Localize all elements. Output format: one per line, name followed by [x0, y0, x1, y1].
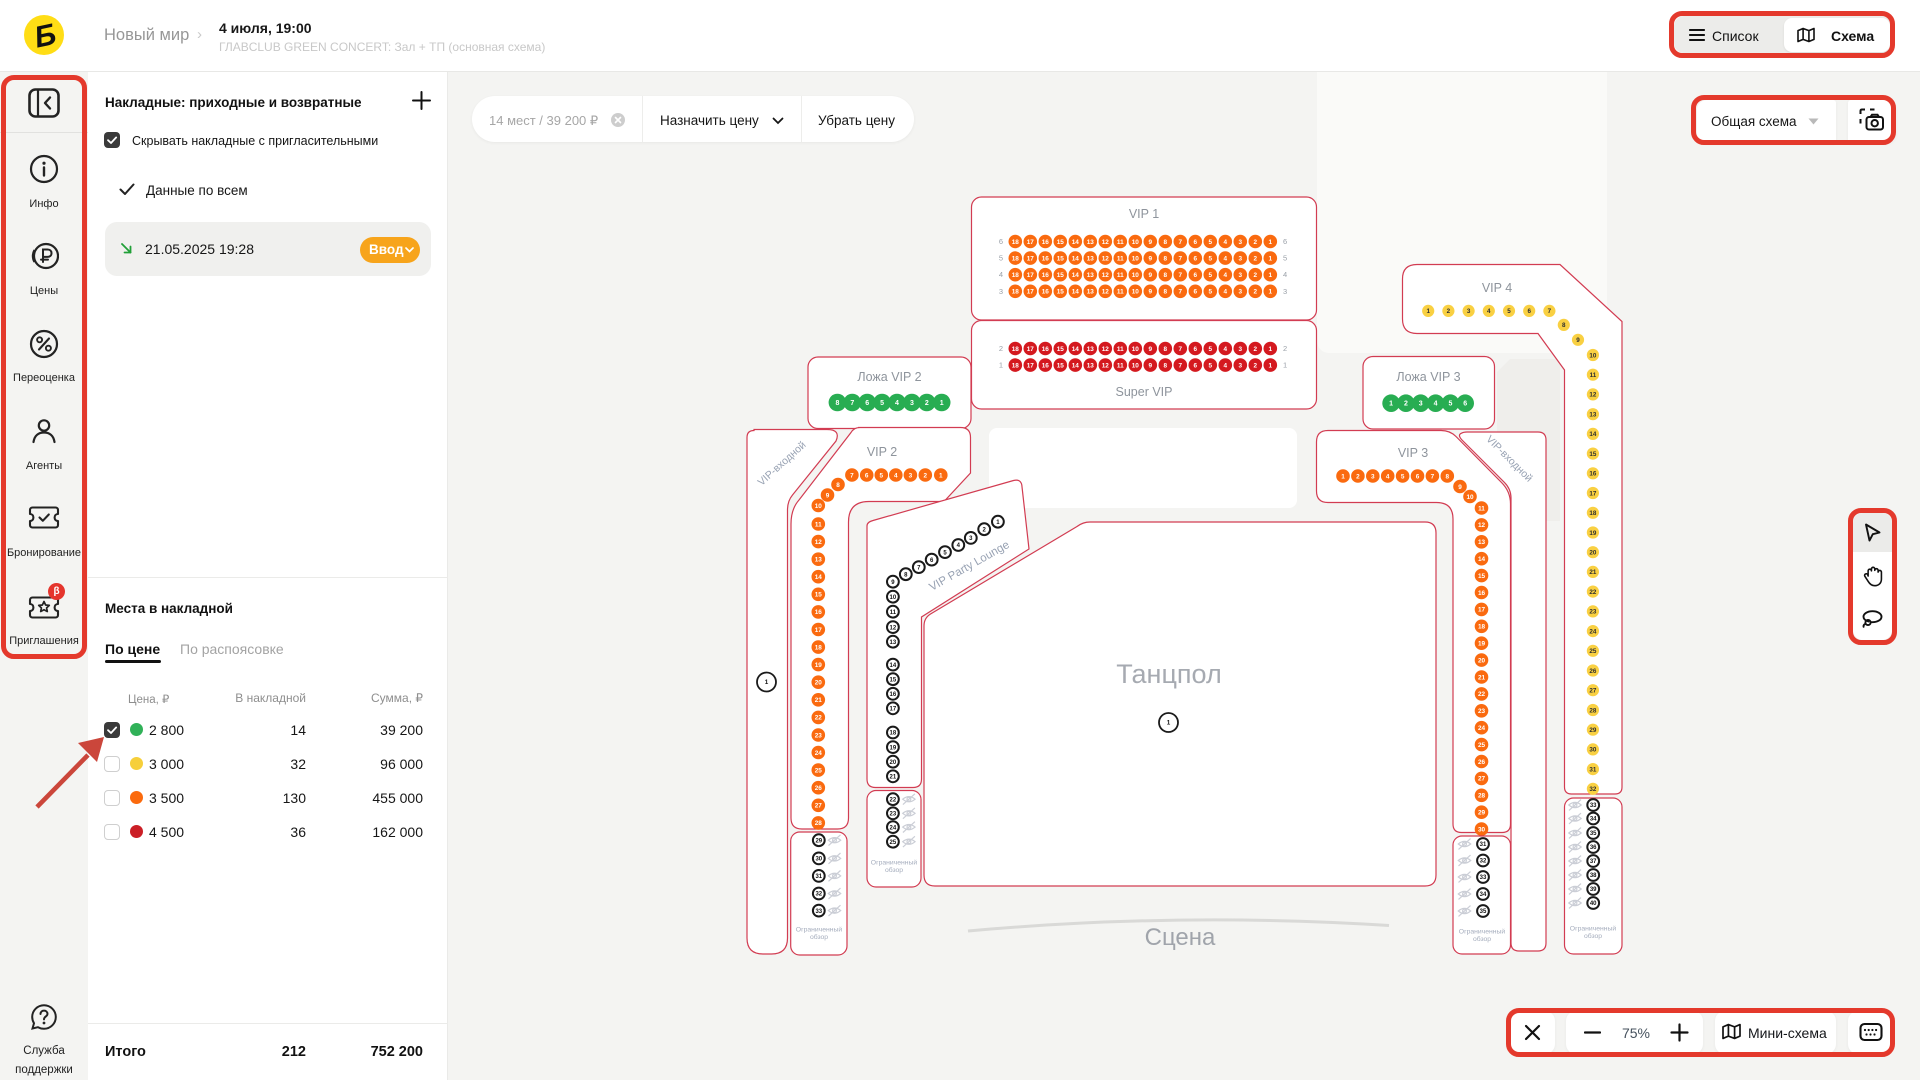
svg-text:4: 4 — [1386, 473, 1390, 480]
svg-text:2: 2 — [1254, 239, 1258, 246]
svg-text:9: 9 — [826, 492, 830, 499]
svg-text:4: 4 — [895, 400, 899, 407]
svg-text:15: 15 — [1057, 362, 1065, 369]
svg-text:10: 10 — [1132, 255, 1140, 262]
svg-text:20: 20 — [1478, 657, 1486, 664]
svg-text:1: 1 — [1269, 239, 1273, 246]
svg-text:1: 1 — [1426, 308, 1430, 315]
svg-text:8: 8 — [1446, 473, 1450, 480]
svg-text:10: 10 — [1132, 272, 1140, 279]
svg-text:11: 11 — [1117, 239, 1124, 246]
svg-text:5: 5 — [1401, 473, 1405, 480]
svg-text:33: 33 — [1480, 875, 1487, 881]
svg-text:10: 10 — [1132, 239, 1140, 246]
svg-text:1: 1 — [1269, 346, 1273, 353]
svg-text:10: 10 — [890, 595, 897, 601]
svg-text:18: 18 — [1012, 346, 1020, 353]
svg-text:29: 29 — [1589, 727, 1597, 734]
svg-text:3: 3 — [1283, 287, 1287, 296]
svg-text:17: 17 — [1027, 346, 1035, 353]
svg-text:обзор: обзор — [810, 933, 828, 941]
svg-text:24: 24 — [890, 825, 897, 831]
svg-text:13: 13 — [1087, 346, 1095, 353]
svg-text:25: 25 — [1478, 742, 1486, 749]
svg-text:8: 8 — [1164, 255, 1168, 262]
svg-text:31: 31 — [1589, 766, 1597, 773]
svg-text:4: 4 — [894, 472, 898, 479]
svg-text:35: 35 — [1590, 831, 1597, 837]
svg-text:5: 5 — [1283, 254, 1287, 263]
svg-text:29: 29 — [815, 838, 822, 844]
svg-text:22: 22 — [1589, 589, 1597, 596]
svg-text:7: 7 — [1431, 473, 1435, 480]
svg-text:9: 9 — [1149, 289, 1153, 296]
svg-text:39: 39 — [1590, 887, 1597, 893]
svg-text:32: 32 — [1589, 786, 1597, 793]
svg-text:30: 30 — [1589, 747, 1597, 754]
svg-text:17: 17 — [1027, 362, 1035, 369]
svg-text:10: 10 — [815, 503, 823, 510]
svg-text:3: 3 — [1371, 473, 1375, 480]
svg-text:Ограниченный: Ограниченный — [796, 926, 843, 934]
svg-text:3: 3 — [1239, 289, 1243, 296]
svg-text:8: 8 — [1164, 346, 1168, 353]
svg-text:16: 16 — [1042, 346, 1050, 353]
svg-text:40: 40 — [1590, 901, 1597, 907]
svg-text:34: 34 — [1590, 817, 1597, 823]
svg-text:4: 4 — [1224, 272, 1228, 279]
svg-text:23: 23 — [890, 812, 897, 818]
svg-text:22: 22 — [1478, 691, 1486, 698]
svg-text:1: 1 — [939, 472, 943, 479]
svg-text:15: 15 — [1057, 346, 1065, 353]
svg-text:24: 24 — [1478, 725, 1486, 732]
svg-text:5: 5 — [1209, 239, 1213, 246]
svg-text:2: 2 — [1283, 344, 1287, 353]
svg-text:17: 17 — [1027, 289, 1035, 296]
svg-text:15: 15 — [1057, 289, 1065, 296]
svg-text:21: 21 — [890, 775, 897, 781]
svg-text:7: 7 — [1179, 289, 1183, 296]
svg-text:8: 8 — [836, 482, 840, 489]
svg-text:26: 26 — [815, 785, 823, 792]
svg-text:3: 3 — [910, 400, 914, 407]
svg-text:16: 16 — [890, 692, 897, 698]
svg-text:12: 12 — [815, 539, 823, 546]
svg-text:12: 12 — [1102, 362, 1110, 369]
svg-text:12: 12 — [1102, 272, 1110, 279]
svg-text:20: 20 — [890, 760, 897, 766]
svg-text:5: 5 — [1448, 401, 1452, 408]
svg-text:13: 13 — [815, 557, 823, 564]
svg-text:15: 15 — [1589, 451, 1597, 458]
svg-text:6: 6 — [865, 400, 869, 407]
svg-text:23: 23 — [1589, 609, 1597, 616]
svg-text:3: 3 — [1239, 272, 1243, 279]
svg-text:14: 14 — [815, 574, 823, 581]
svg-text:11: 11 — [1117, 362, 1124, 369]
svg-text:28: 28 — [1589, 707, 1597, 714]
svg-text:Super VIP: Super VIP — [1116, 385, 1173, 399]
svg-text:7: 7 — [1179, 255, 1183, 262]
svg-text:9: 9 — [1149, 346, 1153, 353]
svg-text:11: 11 — [1590, 372, 1597, 379]
svg-text:4: 4 — [1224, 362, 1228, 369]
svg-text:8: 8 — [835, 400, 839, 407]
svg-text:16: 16 — [1589, 471, 1597, 478]
svg-text:6: 6 — [1194, 346, 1198, 353]
svg-text:22: 22 — [815, 715, 823, 722]
svg-text:11: 11 — [890, 610, 897, 616]
svg-text:4: 4 — [1224, 346, 1228, 353]
svg-text:обзор: обзор — [1584, 932, 1602, 940]
svg-text:3: 3 — [1467, 308, 1471, 315]
svg-text:4: 4 — [1224, 289, 1228, 296]
svg-text:VIP 4: VIP 4 — [1482, 281, 1512, 295]
svg-text:1: 1 — [1269, 272, 1273, 279]
svg-text:5: 5 — [1209, 255, 1213, 262]
svg-text:8: 8 — [1164, 239, 1168, 246]
svg-text:16: 16 — [1042, 362, 1050, 369]
svg-text:VIP 3: VIP 3 — [1398, 446, 1428, 460]
svg-text:10: 10 — [1132, 346, 1140, 353]
svg-text:9: 9 — [1576, 337, 1580, 344]
svg-text:9: 9 — [1458, 484, 1462, 491]
svg-text:6: 6 — [865, 472, 869, 479]
svg-text:33: 33 — [1590, 803, 1597, 809]
svg-text:28: 28 — [815, 820, 823, 827]
svg-text:25: 25 — [1589, 648, 1597, 655]
svg-text:15: 15 — [815, 592, 823, 599]
svg-text:5: 5 — [1209, 346, 1213, 353]
svg-text:13: 13 — [1087, 289, 1095, 296]
svg-text:37: 37 — [1590, 859, 1597, 865]
svg-text:9: 9 — [1149, 362, 1153, 369]
svg-text:5: 5 — [880, 472, 884, 479]
svg-text:17: 17 — [815, 627, 823, 634]
svg-text:10: 10 — [1132, 362, 1140, 369]
svg-text:1: 1 — [1269, 289, 1273, 296]
svg-text:17: 17 — [1027, 255, 1035, 262]
svg-text:12: 12 — [1589, 392, 1597, 399]
svg-text:13: 13 — [1478, 539, 1486, 546]
svg-text:8: 8 — [1164, 272, 1168, 279]
svg-text:Сцена: Сцена — [1145, 924, 1216, 951]
svg-text:17: 17 — [1027, 272, 1035, 279]
svg-text:15: 15 — [1057, 255, 1065, 262]
svg-text:30: 30 — [815, 857, 822, 863]
svg-text:9: 9 — [1149, 255, 1153, 262]
svg-text:21: 21 — [815, 697, 823, 704]
svg-text:2: 2 — [1254, 272, 1258, 279]
svg-text:17: 17 — [1589, 490, 1597, 497]
svg-text:16: 16 — [1042, 239, 1050, 246]
svg-text:6: 6 — [1194, 289, 1198, 296]
svg-text:18: 18 — [1589, 510, 1597, 517]
svg-text:Б: Б — [31, 18, 59, 55]
svg-text:10: 10 — [1132, 289, 1140, 296]
svg-text:12: 12 — [1102, 346, 1110, 353]
svg-text:2: 2 — [1254, 255, 1258, 262]
svg-text:7: 7 — [1179, 362, 1183, 369]
svg-text:34: 34 — [1480, 892, 1487, 898]
svg-text:25: 25 — [815, 767, 823, 774]
svg-text:16: 16 — [1042, 255, 1050, 262]
svg-text:13: 13 — [890, 640, 897, 646]
svg-text:12: 12 — [890, 625, 897, 631]
svg-text:9: 9 — [1149, 239, 1153, 246]
svg-text:8: 8 — [1164, 289, 1168, 296]
svg-text:4: 4 — [999, 270, 1003, 279]
svg-text:18: 18 — [1012, 362, 1020, 369]
svg-text:10: 10 — [1466, 494, 1474, 501]
svg-text:1: 1 — [1389, 401, 1393, 408]
svg-text:Ограниченный: Ограниченный — [1459, 928, 1506, 936]
svg-text:4: 4 — [1487, 308, 1491, 315]
svg-text:5: 5 — [1209, 272, 1213, 279]
svg-text:Ложа VIP 2: Ложа VIP 2 — [857, 370, 921, 384]
svg-text:13: 13 — [1087, 272, 1095, 279]
svg-text:11: 11 — [1117, 255, 1124, 262]
svg-text:18: 18 — [1012, 272, 1020, 279]
svg-text:20: 20 — [1589, 550, 1597, 557]
svg-text:5: 5 — [1209, 289, 1213, 296]
svg-text:11: 11 — [1117, 272, 1124, 279]
svg-text:6: 6 — [1416, 473, 1420, 480]
svg-text:15: 15 — [1057, 239, 1065, 246]
svg-text:14: 14 — [1478, 556, 1486, 563]
svg-text:4: 4 — [1283, 270, 1287, 279]
svg-text:18: 18 — [1012, 255, 1020, 262]
svg-text:1: 1 — [1283, 361, 1287, 370]
svg-text:3: 3 — [1419, 401, 1423, 408]
svg-text:10: 10 — [1589, 352, 1597, 359]
svg-text:11: 11 — [1117, 346, 1124, 353]
svg-text:16: 16 — [815, 609, 823, 616]
svg-text:14: 14 — [1072, 255, 1080, 262]
svg-text:30: 30 — [1478, 826, 1486, 833]
svg-text:6: 6 — [1194, 239, 1198, 246]
svg-text:3: 3 — [1239, 362, 1243, 369]
svg-text:Ограниченный: Ограниченный — [1570, 925, 1617, 933]
svg-text:21: 21 — [1478, 674, 1486, 681]
svg-text:5: 5 — [1507, 308, 1511, 315]
svg-text:4: 4 — [1224, 255, 1228, 262]
svg-text:11: 11 — [1117, 289, 1124, 296]
svg-text:12: 12 — [1102, 239, 1110, 246]
svg-text:26: 26 — [1589, 668, 1597, 675]
svg-text:VIP 1: VIP 1 — [1129, 207, 1159, 221]
svg-text:обзор: обзор — [885, 866, 903, 874]
svg-text:19: 19 — [1478, 641, 1486, 648]
svg-text:18: 18 — [1012, 289, 1020, 296]
svg-text:8: 8 — [1164, 362, 1168, 369]
svg-text:3: 3 — [1239, 255, 1243, 262]
svg-text:Танцпол: Танцпол — [1116, 659, 1221, 689]
svg-text:32: 32 — [815, 892, 822, 898]
svg-text:2: 2 — [999, 344, 1003, 353]
svg-text:7: 7 — [1179, 346, 1183, 353]
svg-text:35: 35 — [1480, 909, 1487, 915]
svg-text:12: 12 — [1102, 289, 1110, 296]
svg-text:36: 36 — [1590, 845, 1597, 851]
svg-text:23: 23 — [815, 732, 823, 739]
svg-text:1: 1 — [940, 400, 944, 407]
svg-text:1: 1 — [1269, 255, 1273, 262]
svg-text:14: 14 — [1072, 239, 1080, 246]
svg-text:6: 6 — [1527, 308, 1531, 315]
svg-text:5: 5 — [999, 254, 1003, 263]
svg-text:5: 5 — [1209, 362, 1213, 369]
svg-text:27: 27 — [1478, 776, 1486, 783]
svg-text:24: 24 — [815, 750, 823, 757]
svg-text:12: 12 — [1478, 522, 1486, 529]
svg-text:Ложа VIP 3: Ложа VIP 3 — [1396, 370, 1460, 384]
svg-text:6: 6 — [1194, 255, 1198, 262]
svg-text:8: 8 — [1562, 322, 1566, 329]
svg-text:16: 16 — [1478, 590, 1486, 597]
svg-text:2: 2 — [1404, 401, 1408, 408]
svg-text:38: 38 — [1590, 873, 1597, 879]
svg-text:29: 29 — [1478, 810, 1486, 817]
svg-text:31: 31 — [1480, 842, 1487, 848]
svg-text:20: 20 — [815, 680, 823, 687]
svg-text:обзор: обзор — [1473, 935, 1491, 943]
svg-text:27: 27 — [815, 803, 823, 810]
svg-text:3: 3 — [909, 472, 913, 479]
svg-text:1: 1 — [765, 679, 769, 686]
svg-text:3: 3 — [1239, 346, 1243, 353]
svg-text:1: 1 — [1269, 362, 1273, 369]
svg-text:25: 25 — [890, 840, 897, 846]
svg-text:16: 16 — [1042, 289, 1050, 296]
svg-text:7: 7 — [850, 472, 854, 479]
svg-text:7: 7 — [1548, 308, 1552, 315]
svg-text:14: 14 — [1589, 431, 1597, 438]
svg-text:7: 7 — [850, 400, 854, 407]
svg-text:18: 18 — [1478, 624, 1486, 631]
svg-text:6: 6 — [999, 237, 1003, 246]
svg-text:VIP 2: VIP 2 — [867, 445, 897, 459]
svg-text:2: 2 — [924, 472, 928, 479]
svg-text:5: 5 — [880, 400, 884, 407]
svg-text:2: 2 — [1254, 289, 1258, 296]
svg-text:13: 13 — [1087, 239, 1095, 246]
svg-text:15: 15 — [1057, 272, 1065, 279]
svg-text:2: 2 — [925, 400, 929, 407]
svg-text:12: 12 — [1102, 255, 1110, 262]
svg-text:32: 32 — [1480, 859, 1487, 865]
svg-text:31: 31 — [815, 874, 822, 880]
svg-text:19: 19 — [815, 662, 823, 669]
svg-text:19: 19 — [1589, 530, 1597, 537]
svg-text:33: 33 — [815, 909, 822, 915]
svg-text:13: 13 — [1087, 362, 1095, 369]
svg-text:9: 9 — [1149, 272, 1153, 279]
svg-text:2: 2 — [1356, 473, 1360, 480]
svg-text:11: 11 — [1478, 505, 1485, 512]
svg-text:18: 18 — [815, 644, 823, 651]
svg-text:2: 2 — [1447, 308, 1451, 315]
svg-text:18: 18 — [890, 731, 897, 737]
svg-text:6: 6 — [1194, 272, 1198, 279]
svg-text:6: 6 — [1463, 401, 1467, 408]
svg-text:1: 1 — [1167, 720, 1171, 727]
svg-text:15: 15 — [890, 677, 897, 683]
svg-text:7: 7 — [1179, 239, 1183, 246]
svg-text:27: 27 — [1589, 688, 1597, 695]
svg-text:14: 14 — [890, 663, 897, 669]
svg-text:16: 16 — [1042, 272, 1050, 279]
svg-text:1: 1 — [1341, 473, 1345, 480]
svg-text:23: 23 — [1478, 708, 1486, 715]
svg-text:13: 13 — [1087, 255, 1095, 262]
svg-text:13: 13 — [1589, 412, 1597, 419]
svg-text:14: 14 — [1072, 362, 1080, 369]
svg-text:4: 4 — [1434, 401, 1438, 408]
svg-text:2: 2 — [1254, 346, 1258, 353]
svg-text:18: 18 — [1012, 239, 1020, 246]
svg-text:2: 2 — [1254, 362, 1258, 369]
svg-text:14: 14 — [1072, 272, 1080, 279]
svg-text:1: 1 — [999, 361, 1003, 370]
svg-text:21: 21 — [1589, 569, 1597, 576]
svg-text:14: 14 — [1072, 289, 1080, 296]
svg-text:26: 26 — [1478, 759, 1486, 766]
svg-text:4: 4 — [1224, 239, 1228, 246]
svg-text:17: 17 — [890, 707, 897, 713]
svg-text:15: 15 — [1478, 573, 1486, 580]
svg-text:17: 17 — [1027, 239, 1035, 246]
svg-text:6: 6 — [1194, 362, 1198, 369]
svg-text:6: 6 — [1283, 237, 1287, 246]
svg-text:17: 17 — [1478, 607, 1486, 614]
svg-text:14: 14 — [1072, 346, 1080, 353]
svg-text:28: 28 — [1478, 793, 1486, 800]
svg-text:3: 3 — [1239, 239, 1243, 246]
svg-text:Ограниченный: Ограниченный — [871, 859, 918, 867]
svg-text:24: 24 — [1589, 628, 1597, 635]
svg-text:7: 7 — [1179, 272, 1183, 279]
svg-text:19: 19 — [890, 745, 897, 751]
svg-text:22: 22 — [890, 797, 897, 803]
svg-text:11: 11 — [815, 521, 822, 528]
svg-text:3: 3 — [999, 287, 1003, 296]
